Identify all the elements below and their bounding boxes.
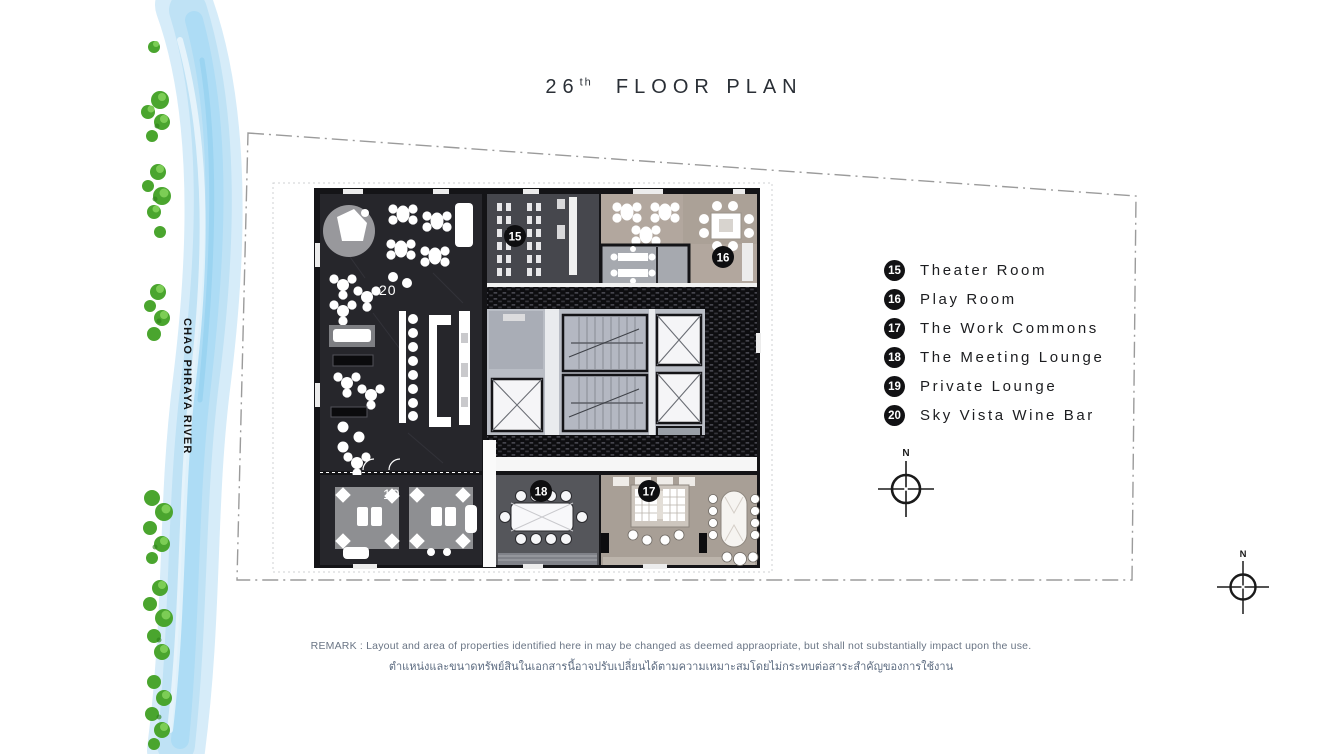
legend-number-badge: 17 <box>884 318 905 339</box>
compass-north-label: N <box>902 448 909 459</box>
title-text: FLOOR PLAN <box>616 76 803 98</box>
piano-lounge <box>323 205 375 257</box>
zone-private-lounge: 19 <box>320 473 482 566</box>
meeting-pods-room <box>601 245 689 286</box>
legend-item-label: The Work Commons <box>920 320 1099 337</box>
legend-item-label: Sky Vista Wine Bar <box>920 407 1095 424</box>
legend-number-badge: 19 <box>884 376 905 397</box>
legend-item-label: Theater Room <box>920 262 1047 279</box>
page-title: 26th FLOOR PLAN <box>524 76 824 99</box>
marker-play-room: 16 <box>717 253 730 265</box>
legend-number-badge: 18 <box>884 347 905 368</box>
legend-item-meeting-lounge: 18 The Meeting Lounge <box>884 343 1104 372</box>
legend-number-badge: 20 <box>884 405 905 426</box>
legend-item-label: The Meeting Lounge <box>920 349 1104 366</box>
title-ordinal: th <box>580 76 593 88</box>
zone-work-commons: 17 <box>601 475 760 566</box>
zone-play-room: 16 <box>601 194 757 286</box>
legend-number-badge: 16 <box>884 289 905 310</box>
marker-wine-bar: 20 <box>379 282 397 298</box>
compass-north-indicator: N <box>871 442 941 522</box>
legend-item-theater-room: 15 Theater Room <box>884 256 1104 285</box>
marker-theater: 15 <box>509 232 522 244</box>
stairwell-lower <box>563 375 647 431</box>
legend-item-play-room: 16 Play Room <box>884 285 1104 314</box>
remark-text-english: REMARK : Layout and area of properties i… <box>0 640 1342 652</box>
compass-north-indicator: N <box>1211 544 1275 620</box>
legend: 15 Theater Room 16 Play Room 17 The Work… <box>884 256 1104 430</box>
legend-number-badge: 15 <box>884 260 905 281</box>
legend-item-label: Private Lounge <box>920 378 1057 395</box>
legend-item-private-lounge: 19 Private Lounge <box>884 372 1104 401</box>
legend-item-wine-bar: 20 Sky Vista Wine Bar <box>884 401 1104 430</box>
remark-block: REMARK : Layout and area of properties i… <box>0 640 1342 675</box>
floor-plan: 20 15 <box>313 183 763 573</box>
zone-meeting-lounge: 18 <box>496 475 599 565</box>
title-floor-number: 26 <box>545 76 579 98</box>
marker-work-commons: 17 <box>643 487 656 499</box>
marker-meeting-lounge: 18 <box>535 487 548 499</box>
stairwell-upper <box>563 315 647 371</box>
compass-north-label: N <box>1240 549 1247 560</box>
zone-wine-bar: 20 <box>320 194 482 478</box>
marker-private-lounge: 19 <box>383 486 401 502</box>
zone-theater: 15 <box>487 194 599 286</box>
long-table <box>721 491 747 547</box>
remark-text-thai: ตำแหน่งและขนาดทรัพย์สินในเอกสารนี้อาจปรั… <box>0 657 1342 675</box>
legend-item-work-commons: 17 The Work Commons <box>884 314 1104 343</box>
page: CHAO PHRAYA RIVER 26th FLOOR PLAN <box>0 0 1342 754</box>
legend-item-label: Play Room <box>920 291 1017 308</box>
